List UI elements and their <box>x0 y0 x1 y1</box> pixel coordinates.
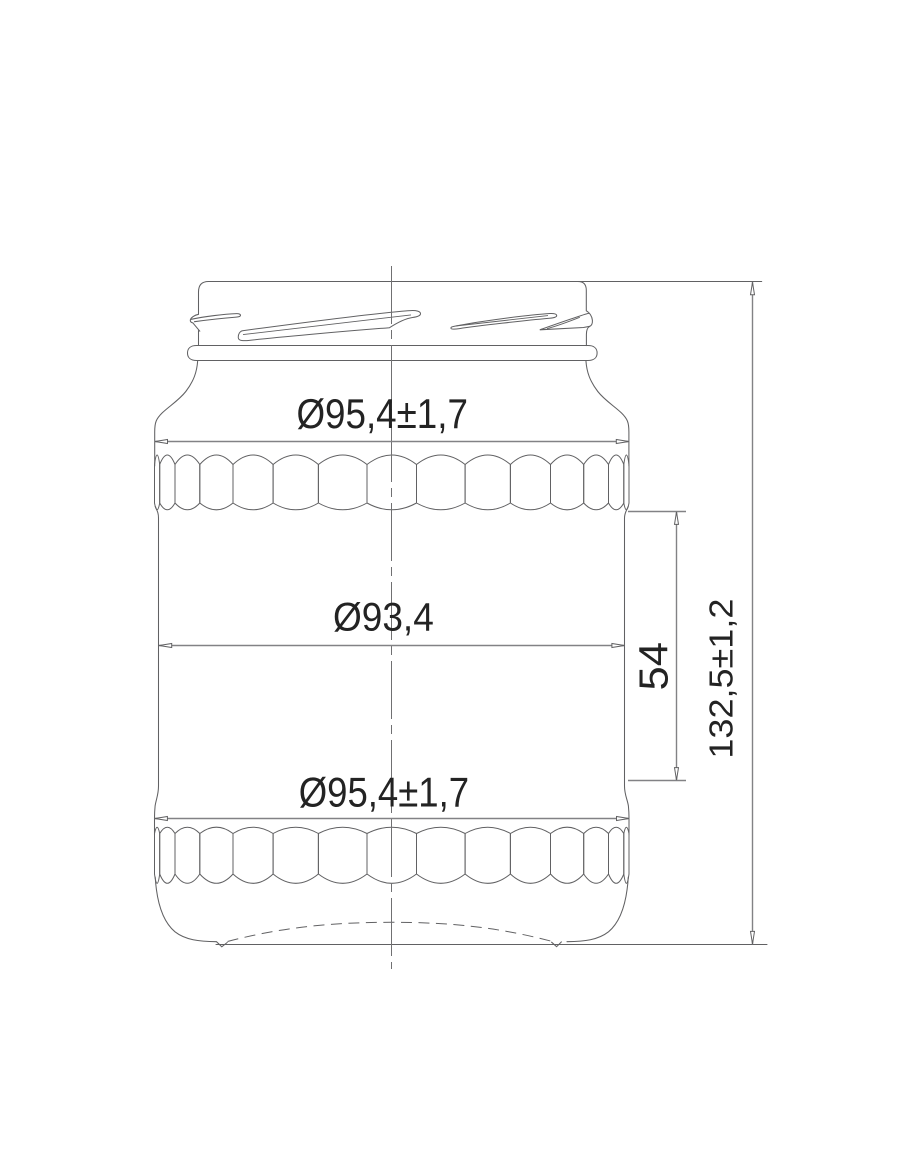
svg-text:54: 54 <box>631 642 677 691</box>
svg-text:Ø95,4±1,7: Ø95,4±1,7 <box>299 770 469 816</box>
svg-text:Ø95,4±1,7: Ø95,4±1,7 <box>296 391 468 437</box>
svg-text:Ø93,4: Ø93,4 <box>333 595 434 639</box>
svg-text:132,5±1,2: 132,5±1,2 <box>703 599 740 759</box>
